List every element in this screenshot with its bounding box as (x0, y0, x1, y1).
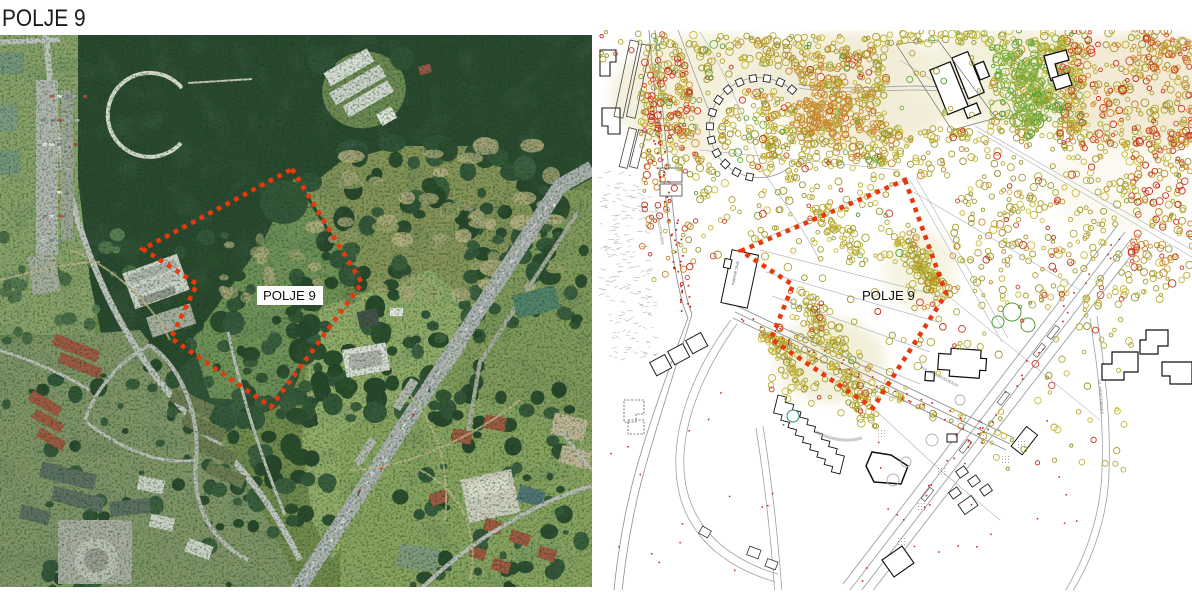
svg-text:POLJE 9: POLJE 9 (862, 288, 915, 303)
svg-text:POLJE 9: POLJE 9 (263, 288, 316, 303)
